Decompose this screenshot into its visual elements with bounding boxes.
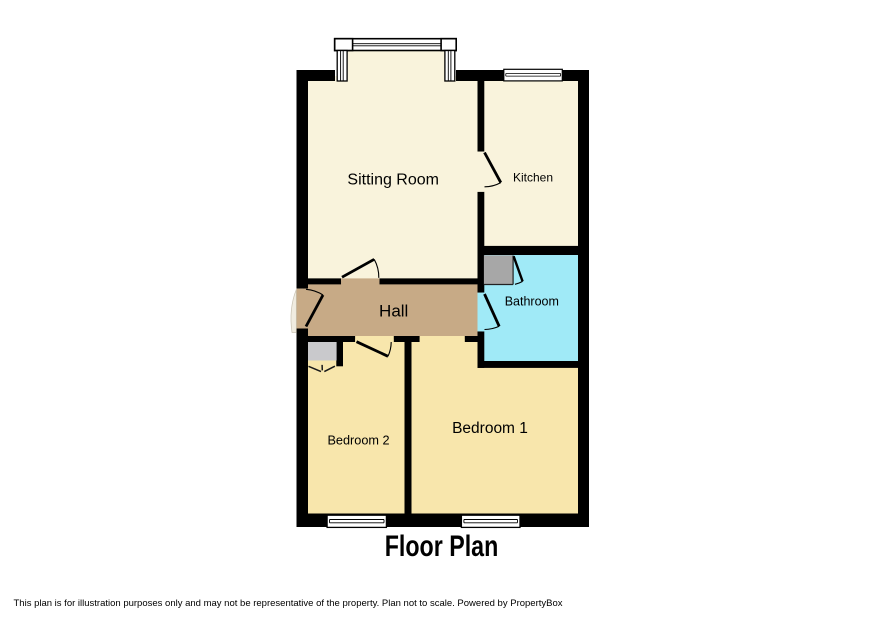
svg-text:Floor Plan: Floor Plan <box>385 530 499 563</box>
svg-text:Bedroom 1: Bedroom 1 <box>452 420 528 437</box>
svg-text:Sitting Room: Sitting Room <box>347 171 439 188</box>
svg-text:This plan is for illustration: This plan is for illustration purposes o… <box>14 598 563 609</box>
svg-text:Kitchen: Kitchen <box>513 170 553 184</box>
svg-text:Bathroom: Bathroom <box>505 295 559 309</box>
svg-text:Hall: Hall <box>379 301 408 320</box>
svg-text:Bedroom 2: Bedroom 2 <box>327 434 389 448</box>
